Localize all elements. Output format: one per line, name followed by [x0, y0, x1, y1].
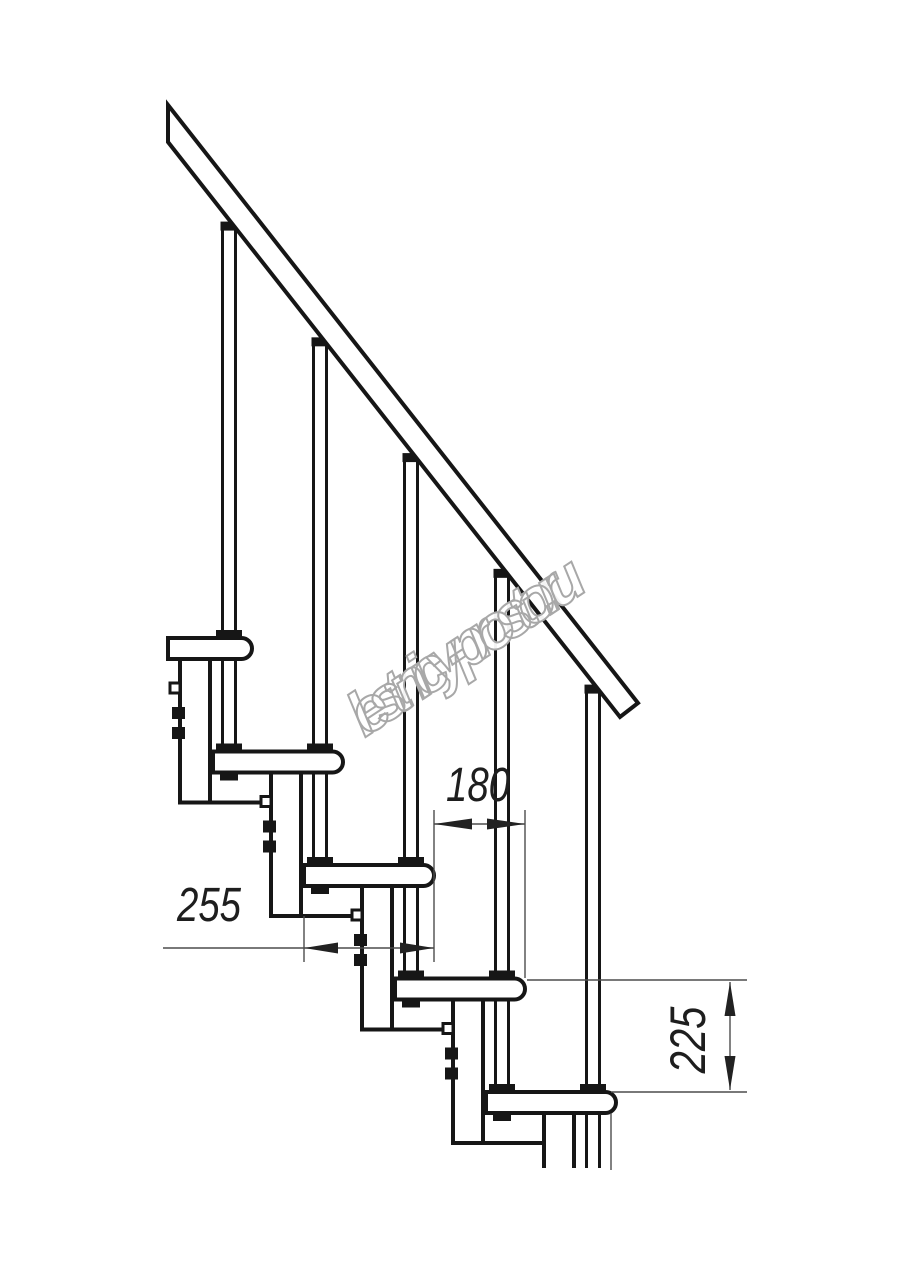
dimension-label-tread-depth: 255: [177, 882, 241, 930]
dimension-label-tread-run: 180: [446, 762, 510, 810]
staircase-drawing: [0, 0, 914, 1280]
dimension-label-step-rise: 225: [663, 1007, 713, 1074]
drawing-canvas: 180 255 225 lestnicy-prosto.ru: [0, 0, 914, 1280]
